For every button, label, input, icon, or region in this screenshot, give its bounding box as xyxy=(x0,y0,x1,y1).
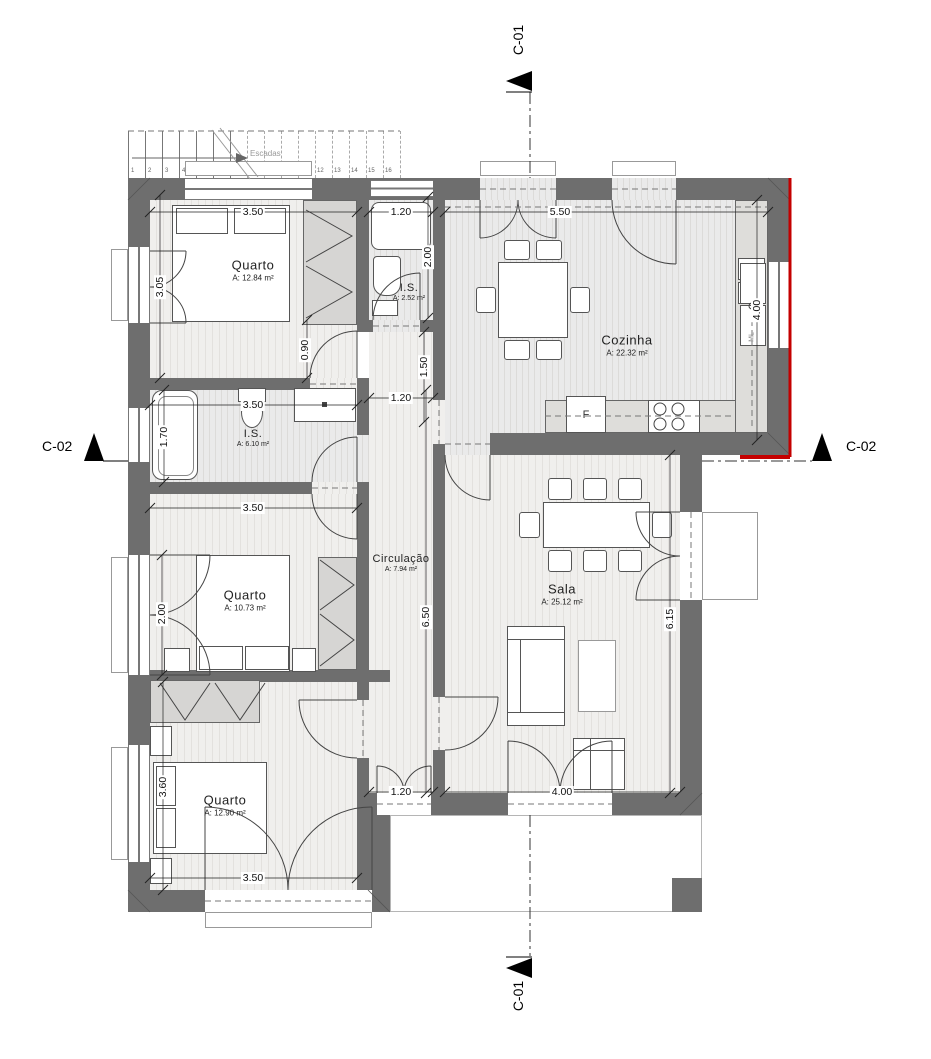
room-area: A: 6.10 m² xyxy=(237,441,269,448)
room-area: A: 10.73 m² xyxy=(224,604,267,613)
room-label-quarto2: Quarto A: 10.73 m² xyxy=(224,588,267,613)
dimension-label: 6.15 xyxy=(664,607,676,631)
room-name: Circulação xyxy=(373,553,430,565)
dimension-label: 1.20 xyxy=(389,392,413,404)
section-triangle-icon xyxy=(506,71,532,91)
room-label-quarto3: Quarto A: 12.90 m² xyxy=(204,793,247,818)
room-label-cozinha: Cozinha A: 22.32 m² xyxy=(601,333,652,358)
room-area: A: 22.32 m² xyxy=(601,349,652,358)
dimension-label: 0.90 xyxy=(299,338,311,362)
section-marker-c02-left: C-02 xyxy=(42,438,72,454)
section-triangle-icon xyxy=(812,433,832,461)
room-name: Quarto xyxy=(204,793,247,808)
dimension-label: 5.50 xyxy=(548,206,572,218)
dimension-label: 1.70 xyxy=(158,425,170,449)
section-marker-c01-bottom: C-01 xyxy=(510,981,526,1011)
section-triangle-icon xyxy=(506,958,532,978)
dimension-label: 1.50 xyxy=(418,355,430,379)
room-name: I.S. xyxy=(237,428,269,440)
dimension-label: 4.00 xyxy=(751,298,763,322)
section-marker-c01-top: C-01 xyxy=(510,25,526,55)
room-label-quarto1: Quarto A: 12.84 m² xyxy=(232,258,275,283)
room-name: Quarto xyxy=(224,588,267,603)
room-name: Cozinha xyxy=(601,333,652,348)
room-name: Sala xyxy=(541,582,582,597)
fridge-label: F xyxy=(583,409,590,421)
dimension-label: 1.20 xyxy=(389,786,413,798)
room-name: I.S. xyxy=(393,282,425,294)
room-name: Quarto xyxy=(232,258,275,273)
room-label-is1: I.S. A: 2.52 m² xyxy=(393,282,425,302)
room-area: A: 25.12 m² xyxy=(541,598,582,607)
dimension-label: 3.50 xyxy=(241,399,265,411)
room-label-is2: I.S. A: 6.10 m² xyxy=(237,428,269,448)
dimension-label: 3.50 xyxy=(241,206,265,218)
room-area: A: 7.94 m² xyxy=(373,566,430,573)
room-label-circulacao: Circulação A: 7.94 m² xyxy=(373,553,430,573)
room-area: A: 2.52 m² xyxy=(393,295,425,302)
dimension-label: 2.00 xyxy=(422,245,434,269)
dimension-label: 6.50 xyxy=(420,605,432,629)
dimension-label: 4.00 xyxy=(550,786,574,798)
dimension-label: 3.60 xyxy=(157,775,169,799)
dimension-label: 1.20 xyxy=(389,206,413,218)
floor-plan: 1 2 3 4 5 6 7 8 9 10 11 12 13 14 15 16 E… xyxy=(0,0,931,1059)
room-label-sala: Sala A: 25.12 m² xyxy=(541,582,582,607)
section-triangle-icon xyxy=(84,433,104,461)
room-area: A: 12.84 m² xyxy=(232,274,275,283)
plan-linework xyxy=(0,0,931,1059)
section-marker-c02-right: C-02 xyxy=(846,438,876,454)
dimension-label: 3.50 xyxy=(241,872,265,884)
washer-label: ML xyxy=(749,332,756,342)
dimension-label: 2.00 xyxy=(156,602,168,626)
dimension-label: 3.05 xyxy=(154,275,166,299)
dimension-label: 3.50 xyxy=(241,502,265,514)
room-area: A: 12.90 m² xyxy=(204,809,247,818)
